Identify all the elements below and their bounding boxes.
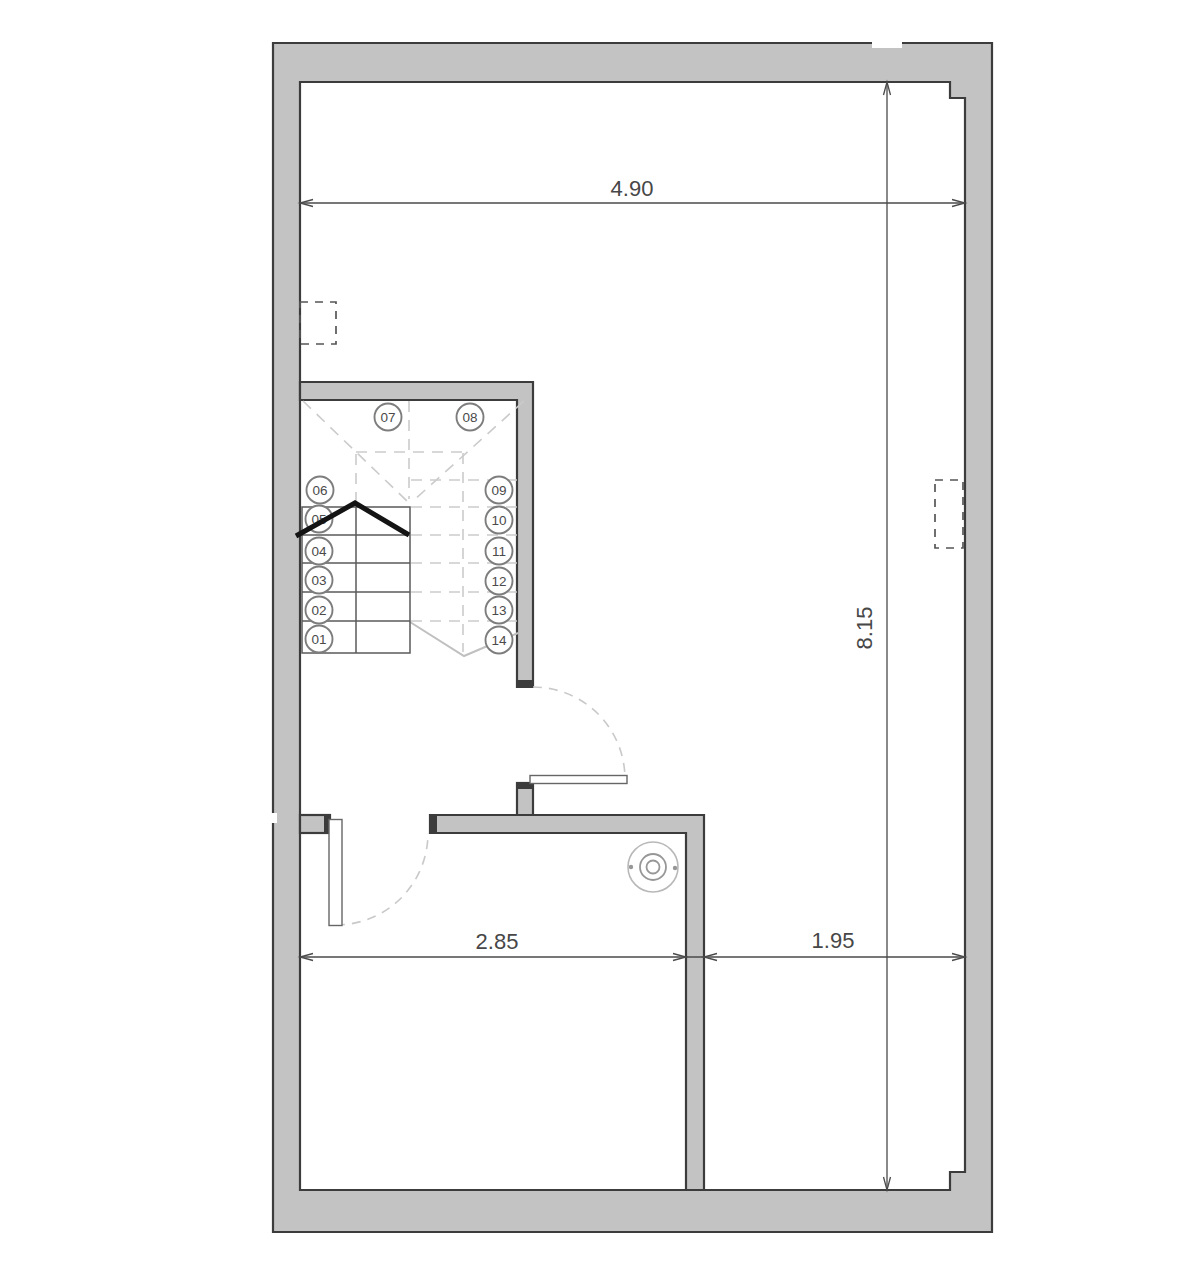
- step-label: 07: [380, 410, 395, 425]
- floor-plan-page: 01 02 03 04 05 06 07 08 09 10 11 12: [0, 0, 1200, 1278]
- dimension-label-right: 1.95: [812, 928, 855, 953]
- step-label: 11: [492, 544, 506, 559]
- floor-drain-symbol: [628, 842, 678, 892]
- dimension-top-width: 4.90: [300, 176, 965, 207]
- step-marker-08: 08: [457, 404, 484, 431]
- lower-room-wall: [430, 815, 704, 1190]
- step-marker-14: 14: [486, 627, 513, 654]
- dimension-label: 8.15: [852, 607, 877, 650]
- upper-door-swing-arc: [533, 687, 625, 779]
- step-marker-11: 11: [486, 538, 513, 565]
- step-marker-12: 12: [486, 568, 513, 595]
- staircase: 01 02 03 04 05 06 07 08 09 10 11 12: [296, 401, 524, 656]
- step-marker-06: 06: [307, 477, 334, 504]
- step-marker-09: 09: [486, 477, 513, 504]
- step-marker-04: 04: [306, 538, 333, 565]
- step-label: 01: [311, 632, 326, 647]
- exterior-wall-outer-edge: [273, 43, 992, 1232]
- step-marker-10: 10: [486, 507, 513, 534]
- step-marker-02: 02: [306, 597, 333, 624]
- step-marker-03: 03: [306, 567, 333, 594]
- step-label: 12: [491, 574, 506, 589]
- step-label: 02: [311, 603, 326, 618]
- exterior-wall-fill: [273, 43, 992, 1232]
- wall-outline-gap-left: [269, 813, 277, 823]
- lower-door-leaf: [329, 820, 342, 926]
- floor-plan-canvas: 01 02 03 04 05 06 07 08 09 10 11 12: [0, 0, 1200, 1278]
- step-marker-01: 01: [306, 626, 333, 653]
- step-label: 03: [311, 573, 326, 588]
- upper-door-leaf: [530, 776, 627, 784]
- upper-door: [530, 687, 627, 784]
- lower-door-swing-arc: [336, 833, 428, 925]
- step-label: 10: [491, 513, 506, 528]
- dimension-right-height: 8.15: [852, 82, 891, 1190]
- dimension-bottom: 2.85 1.95: [300, 928, 965, 961]
- step-label: 04: [311, 544, 327, 559]
- step-label: 08: [462, 410, 477, 425]
- step-label: 06: [312, 483, 327, 498]
- step-label: 09: [491, 483, 506, 498]
- dimension-label-left: 2.85: [476, 929, 519, 954]
- exterior-walls: [269, 40, 992, 1232]
- step-label: 14: [491, 633, 507, 648]
- dashed-recess-right: [935, 480, 963, 548]
- step-marker-07: 07: [375, 404, 402, 431]
- dashed-recess-left: [300, 302, 336, 344]
- step-marker-13: 13: [486, 597, 513, 624]
- stair-wall-end-cap: [517, 680, 533, 687]
- dimension-label: 4.90: [611, 176, 654, 201]
- lower-room-wall-cap: [430, 815, 437, 833]
- wall-outline-gap-top: [872, 40, 902, 48]
- lower-door: [329, 820, 428, 926]
- step-label: 13: [491, 603, 506, 618]
